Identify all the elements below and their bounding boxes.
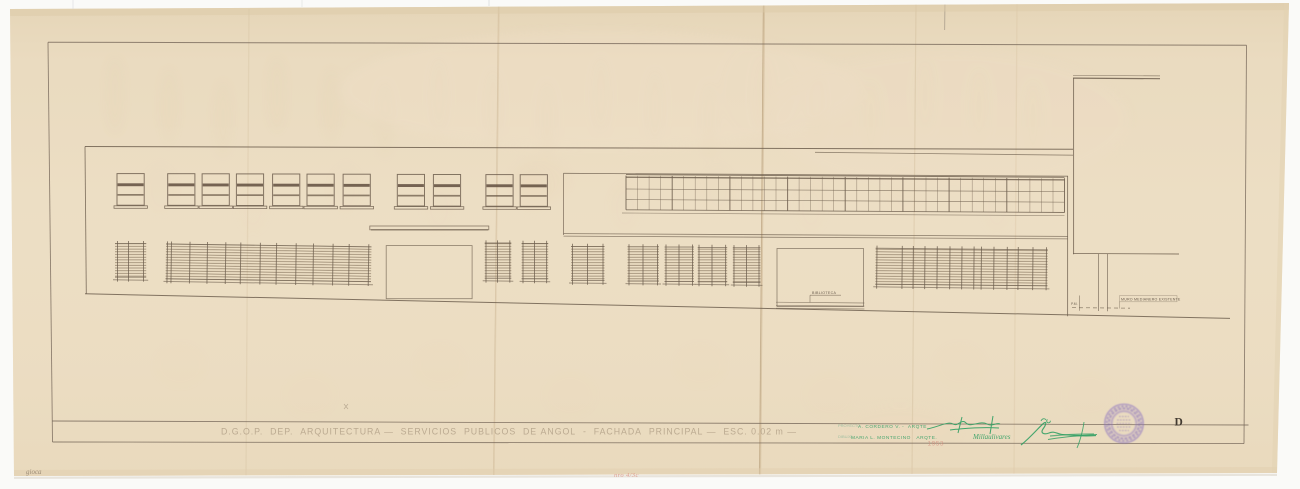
svg-text:nro 4/3c: nro 4/3c (614, 472, 639, 479)
svg-text:1953: 1953 (928, 441, 944, 448)
svg-text:D.G.O.P. DEP. ARQUITECTURA —: D.G.O.P. DEP. ARQUITECTURA — SERVICIOS P… (221, 427, 797, 437)
svg-text:BIBLIOTECA: BIBLIOTECA (812, 291, 836, 295)
svg-text:Millaulivares: Millaulivares (972, 433, 1011, 441)
svg-text:gioca: gioca (26, 468, 42, 476)
svg-text:A. CORDERO V. - ARQTE: A. CORDERO V. - ARQTE (858, 424, 927, 430)
svg-text:MARIA L. MONTECINO ARQTE.: MARIA L. MONTECINO ARQTE. (851, 435, 937, 441)
svg-text:MURO MEDIANERO EXISTENTE: MURO MEDIANERO EXISTENTE (1121, 297, 1181, 301)
svg-text:P.M.: P.M. (1071, 302, 1078, 306)
svg-text:D: D (1175, 416, 1183, 428)
